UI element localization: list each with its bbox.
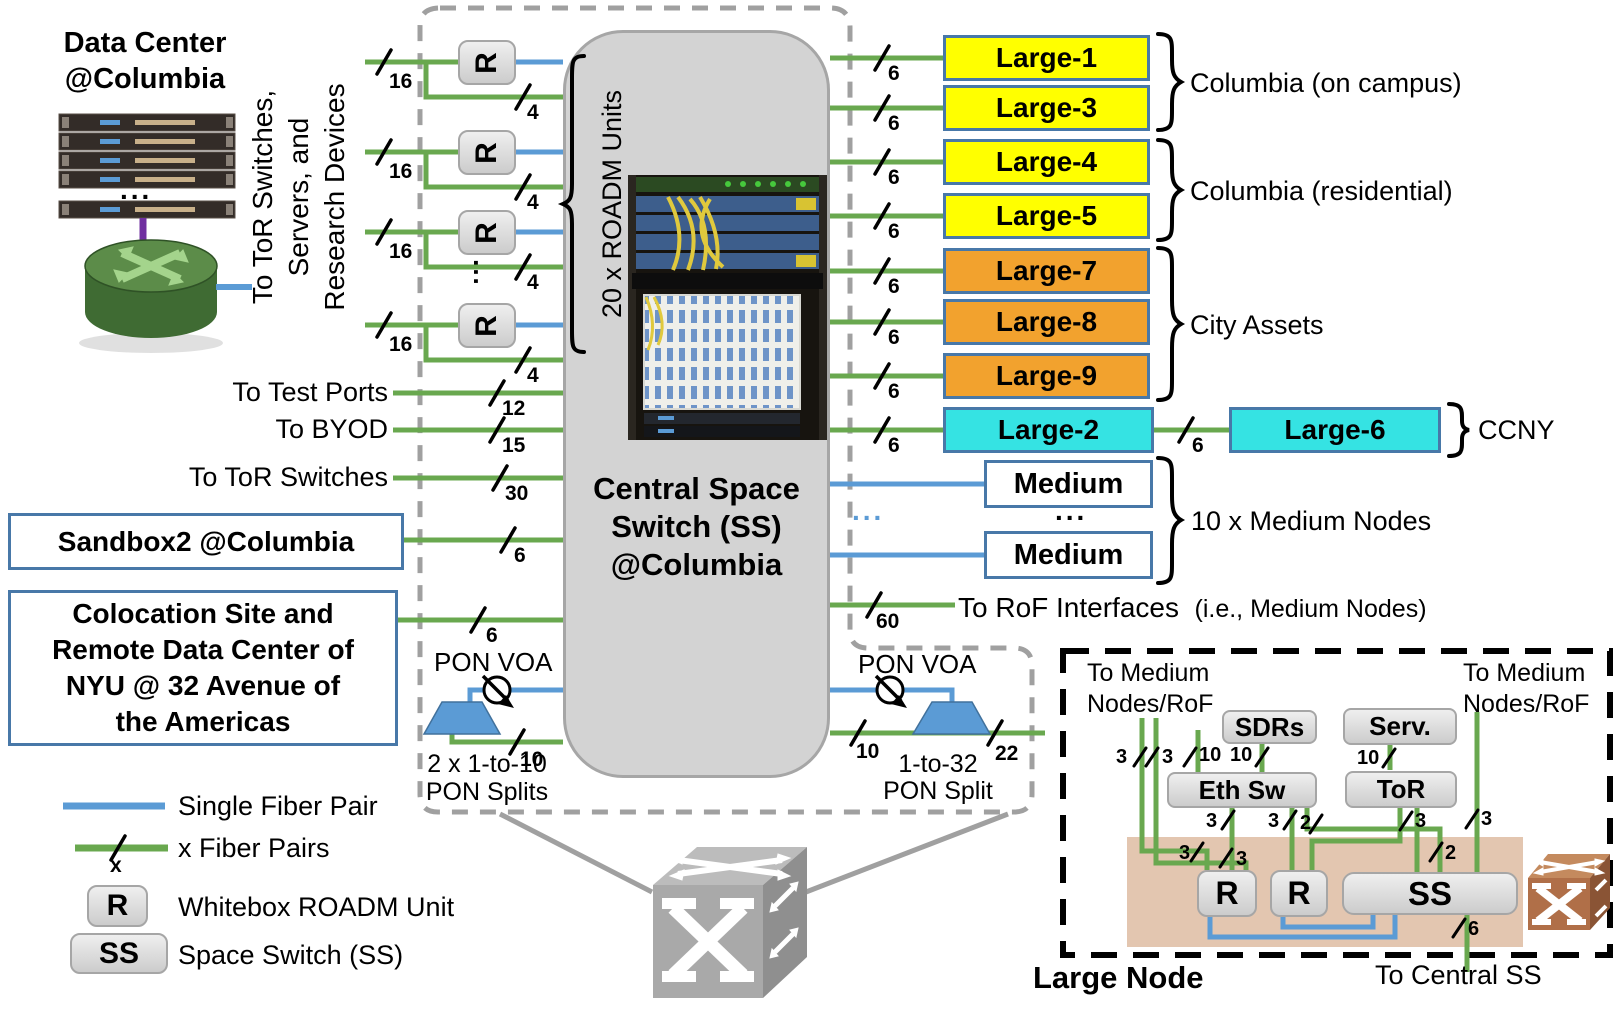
node-large-6: Large-6	[1229, 407, 1441, 453]
inset-ss-box: SS	[1342, 872, 1518, 915]
network-architecture-figure: { "counts": {"c2":"2","c3":"3","c4":"4",…	[0, 0, 1621, 1009]
pon-voa-left-label: PON VOA	[434, 648, 552, 678]
roadm-unit-3: R	[458, 210, 516, 255]
count-6-colo: 6	[486, 624, 498, 648]
node-large-1: Large-1	[943, 35, 1150, 81]
tor-devices-rotated-label: To ToR Switches,Servers, andResearch Dev…	[245, 47, 355, 347]
inset-sdrs-box: SDRs	[1222, 710, 1317, 744]
inset-to-medium-left: To MediumNodes/RoF	[1087, 658, 1213, 720]
node-large-9: Large-9	[943, 353, 1150, 399]
count-6-l7: 6	[888, 275, 900, 299]
inset-3-d: 3	[1268, 810, 1279, 833]
legend-x: x	[110, 854, 122, 878]
count-4-3: 4	[527, 271, 539, 295]
roadm-to-ss-lines	[516, 62, 563, 325]
inset-3-c: 3	[1206, 810, 1217, 833]
pon-left-blue	[470, 690, 563, 702]
count-16-1: 16	[389, 70, 412, 94]
pon-right-blue	[830, 690, 952, 702]
count-6-l1: 6	[888, 62, 900, 86]
legend-roadm-symbol: R	[87, 885, 148, 927]
city-brace	[1158, 248, 1181, 400]
node-large-8: Large-8	[943, 299, 1150, 345]
space-switch-cube-icon	[653, 847, 807, 998]
datacenter-title: Data Center @Columbia	[30, 25, 260, 98]
inset-3-b: 3	[1162, 746, 1173, 769]
node-large-3: Large-3	[943, 85, 1150, 131]
count-22: 22	[995, 742, 1018, 766]
callout-line-left	[500, 814, 652, 892]
inset-10-a: 10	[1199, 744, 1221, 767]
pon-left-splitter	[424, 702, 500, 734]
count-10-ponright: 10	[856, 740, 879, 764]
inset-roadm-1: R	[1197, 870, 1257, 917]
campus-brace	[1158, 34, 1181, 130]
count-60: 60	[876, 610, 899, 634]
count-30: 30	[505, 482, 528, 506]
count-6-l2: 6	[888, 434, 900, 458]
inset-2-a: 2	[1300, 812, 1311, 835]
voa-icon-left	[483, 676, 514, 708]
label-test-ports: To Test Ports	[138, 377, 388, 408]
count-16-4: 16	[389, 333, 412, 357]
residential-brace	[1158, 140, 1181, 240]
pon-left-split-label2: PON Splits	[420, 778, 554, 807]
inset-3-f: 3	[1481, 808, 1492, 831]
count-6-l9: 6	[888, 380, 900, 404]
left-port-lines	[393, 393, 563, 620]
group-ccny: CCNY	[1478, 415, 1555, 446]
inset-2-b: 2	[1445, 842, 1456, 865]
server-ellipsis: ...	[120, 174, 152, 206]
legend-ss-label: Space Switch (SS)	[178, 940, 403, 971]
medium-brace	[1158, 458, 1181, 583]
roadm-unit-4: R	[458, 303, 516, 348]
voa-icon-right	[876, 676, 907, 708]
inset-3-a: 3	[1116, 746, 1127, 769]
inset-6: 6	[1468, 918, 1479, 941]
sandbox-box: Sandbox2 @Columbia	[8, 513, 404, 570]
medium-blue-ellipsis: ...	[852, 495, 884, 527]
inset-to-medium-right: To MediumNodes/RoF	[1463, 658, 1589, 720]
inset-3-g: 3	[1179, 842, 1190, 865]
label-tor-switches: To ToR Switches	[138, 462, 388, 493]
count-6-l3: 6	[888, 112, 900, 136]
large-node-cube-icon	[1528, 854, 1610, 930]
legend-multi-label: x Fiber Pairs	[178, 833, 330, 864]
legend-single-label: Single Fiber Pair	[178, 791, 378, 822]
inset-10-b: 10	[1230, 744, 1252, 767]
medium-black-ellipsis: ...	[1055, 495, 1087, 527]
pon-right-split-label1: 1-to-32	[893, 750, 983, 779]
pon-right-split-label2: PON Split	[878, 777, 998, 806]
inset-blue-links	[1210, 915, 1395, 937]
inset-serv-box: Serv.	[1343, 708, 1457, 745]
legend-ss-symbol: SS	[70, 933, 168, 974]
count-6-ccny: 6	[1192, 434, 1204, 458]
count-6-l8: 6	[888, 326, 900, 350]
central-switch-label: Central SpaceSwitch (SS)@Columbia	[563, 470, 830, 584]
group-medium: 10 x Medium Nodes	[1191, 506, 1431, 537]
count-12: 12	[502, 397, 525, 421]
inset-ethsw-box: Eth Sw	[1167, 772, 1317, 808]
node-large-2: Large-2	[943, 407, 1154, 453]
count-6-sandbox: 6	[514, 544, 526, 568]
group-residential: Columbia (residential)	[1190, 176, 1453, 207]
roadm-ellipsis: ...	[467, 259, 497, 287]
pon-right-splitter	[913, 702, 990, 734]
count-6-l5: 6	[888, 220, 900, 244]
group-city: City Assets	[1190, 310, 1324, 341]
inset-3-e: 3	[1415, 810, 1426, 833]
router-icon	[79, 240, 223, 353]
legend-roadm-label: Whitebox ROADM Unit	[178, 892, 454, 923]
pon-left-green	[452, 734, 563, 742]
node-large-7: Large-7	[943, 248, 1150, 294]
roadm-unit-1: R	[458, 40, 516, 85]
count-15: 15	[502, 434, 525, 458]
inset-roadm-2: R	[1270, 870, 1328, 917]
count-4-4: 4	[527, 364, 539, 388]
inset-tor-box: ToR	[1345, 771, 1457, 808]
roadm-units-rotated-label: 20 x ROADM Units	[598, 64, 626, 344]
inset-3-h: 3	[1236, 848, 1247, 871]
ccny-brace	[1449, 404, 1469, 456]
inset-10-c: 10	[1357, 747, 1379, 770]
count-4-1: 4	[527, 101, 539, 125]
node-medium-2: Medium	[984, 531, 1153, 579]
group-campus: Columbia (on campus)	[1190, 68, 1462, 99]
label-byod: To BYOD	[138, 414, 388, 445]
node-large-4: Large-4	[943, 139, 1150, 185]
rof-label: To RoF Interfaces (i.e., Medium Nodes)	[958, 592, 1427, 624]
count-4-2: 4	[527, 191, 539, 215]
colocation-box: Colocation Site andRemote Data Center of…	[8, 590, 398, 746]
count-16-2: 16	[389, 160, 412, 184]
roadm-unit-2: R	[458, 130, 516, 175]
inset-to-central-ss: To Central SS	[1375, 960, 1542, 991]
count-6-l4: 6	[888, 166, 900, 190]
pon-voa-right-label: PON VOA	[858, 650, 976, 680]
inset-title: Large Node	[1033, 960, 1204, 996]
callout-line-right	[806, 814, 1008, 892]
inset-green-links	[1142, 712, 1477, 972]
node-large-5: Large-5	[943, 193, 1150, 239]
count-16-3: 16	[389, 240, 412, 264]
pon-left-split-label1: 2 x 1-to-10	[420, 750, 554, 779]
